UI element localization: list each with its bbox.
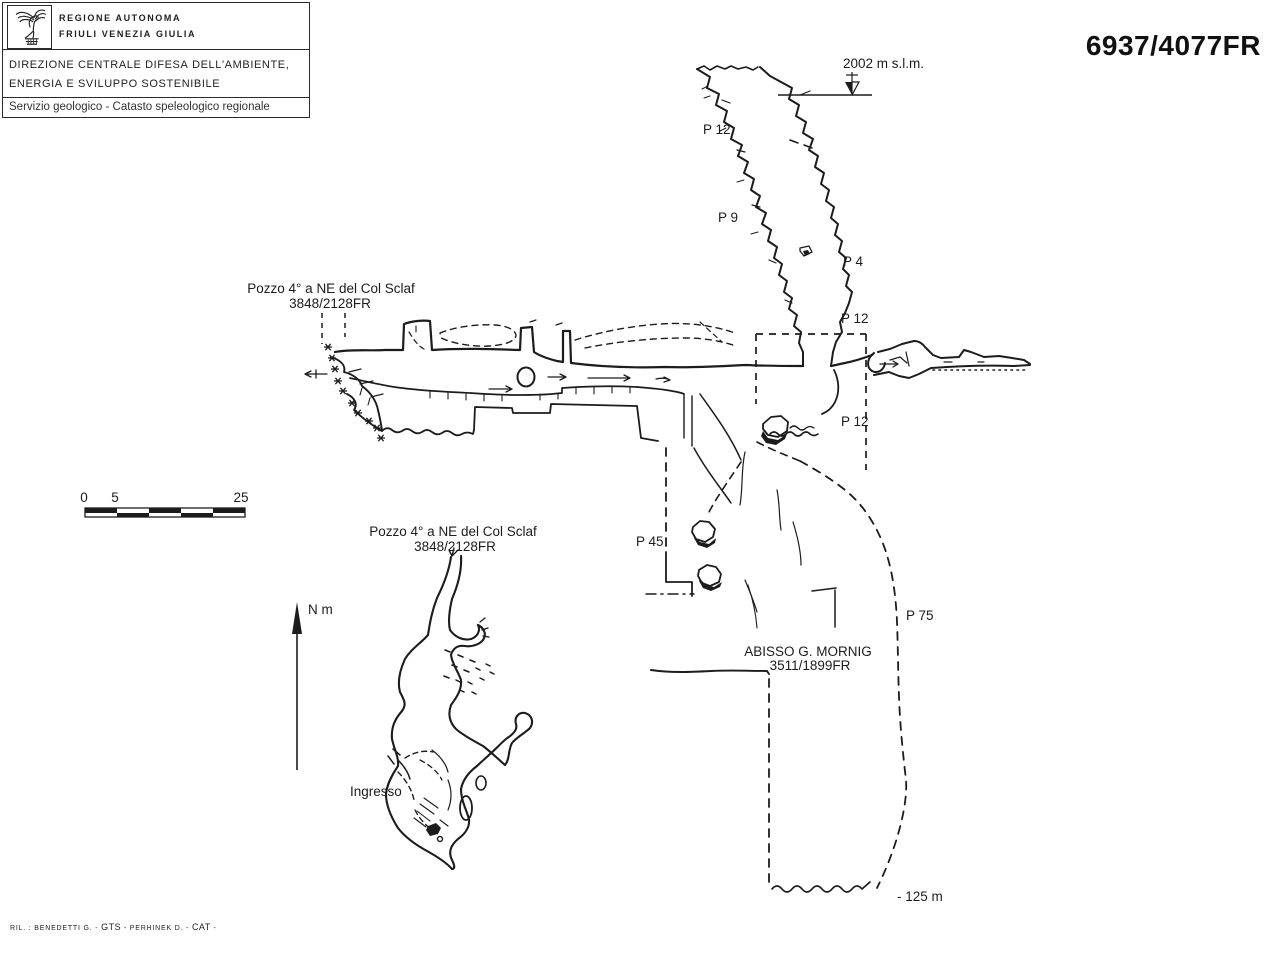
scale-bar: 0 5 25 (80, 490, 248, 517)
plan-view-cave (386, 548, 532, 869)
credits-cat: CAT (192, 918, 211, 933)
pitch-label-p12a: P 12 (703, 122, 731, 137)
cave2-code: 3848/2128FR (414, 539, 496, 554)
credits-part1: RIL. : BENEDETTI G. - (10, 922, 98, 933)
scale-tick-0: 0 (80, 490, 88, 505)
scale-tick-25: 25 (233, 490, 248, 505)
depth-label: - 125 m (897, 889, 943, 904)
pitch-label-p12b: P 12 (841, 311, 869, 326)
snow-asterisks (324, 344, 385, 441)
altitude-datum (778, 72, 872, 95)
profile-p45-shaft (637, 370, 838, 628)
entrance-label: Ingresso (350, 784, 402, 799)
survey-credits: RIL. : BENEDETTI G. - GTS - PERHINEK D. … (10, 918, 217, 933)
mornig-name: ABISSO G. MORNIG (744, 644, 872, 659)
cave1-name: Pozzo 4° a NE del Col Sclaf (247, 281, 415, 296)
credits-part3: - (214, 922, 217, 933)
cave1-code: 3848/2128FR (289, 296, 371, 311)
profile-right-gallery (868, 341, 1030, 378)
cave-name-labels: Pozzo 4° a NE del Col Sclaf 3848/2128FR … (247, 281, 872, 673)
gallery-entrance-snow (322, 313, 385, 441)
credits-part2: - PERHINEK D. - (124, 922, 189, 933)
pitch-label-p9: P 9 (718, 210, 738, 225)
pitch-label-p75: P 75 (906, 608, 934, 623)
profile-mornig-shaft (651, 461, 906, 892)
altitude-label: 2002 m s.l.m. (843, 56, 924, 71)
scale-tick-5: 5 (111, 490, 119, 505)
north-arrow (292, 602, 302, 770)
cave-survey-drawing: 2002 m s.l.m. (0, 0, 1279, 958)
pitch-label-p45: P 45 (636, 534, 664, 549)
pitch-label-p4: P 4 (843, 254, 864, 269)
credits-gts: GTS (101, 918, 121, 933)
pitch-label-p12c: P 12 (841, 414, 869, 429)
north-label: N m (308, 602, 333, 617)
mornig-code: 3511/1899FR (770, 658, 851, 673)
cave2-name: Pozzo 4° a NE del Col Sclaf (369, 524, 537, 539)
